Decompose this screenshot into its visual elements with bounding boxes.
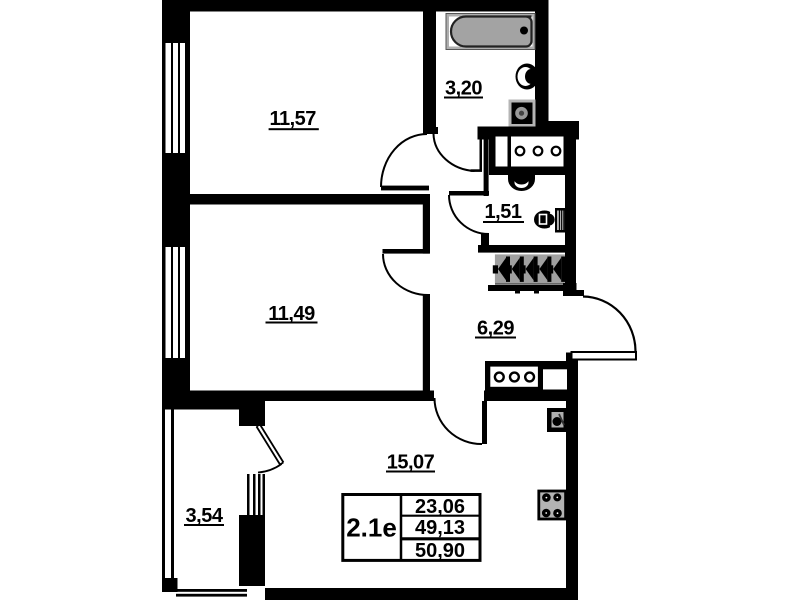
svg-text:50,90: 50,90 [415, 540, 465, 562]
svg-text:6,29: 6,29 [477, 318, 514, 340]
svg-text:49,13: 49,13 [415, 517, 465, 539]
svg-text:2.1e: 2.1e [346, 513, 397, 543]
svg-text:23,06: 23,06 [415, 496, 465, 518]
svg-text:1,51: 1,51 [485, 201, 522, 223]
svg-text:11,57: 11,57 [269, 108, 316, 130]
svg-text:3,54: 3,54 [186, 505, 224, 527]
svg-text:15,07: 15,07 [387, 452, 435, 474]
svg-text:3,20: 3,20 [445, 78, 482, 100]
